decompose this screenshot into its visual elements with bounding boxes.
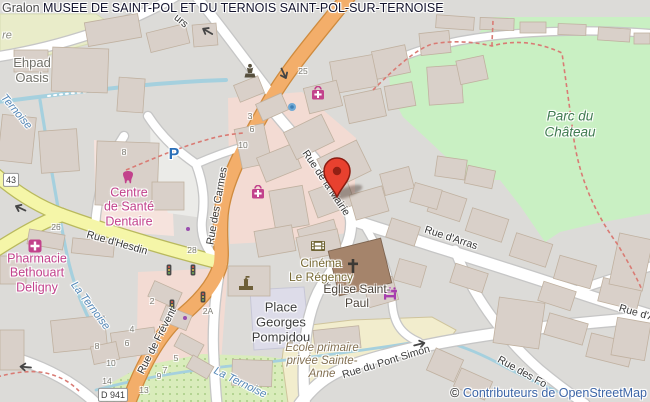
building (95, 141, 159, 207)
building (634, 33, 650, 44)
building (493, 297, 545, 349)
building (598, 27, 631, 42)
pin-body (324, 158, 350, 197)
building (0, 256, 26, 284)
map-base-layer (0, 0, 650, 402)
building (520, 22, 546, 33)
building (146, 23, 190, 52)
building (465, 208, 509, 243)
building (435, 156, 467, 180)
building (0, 330, 24, 370)
building (410, 183, 442, 210)
building (269, 185, 309, 230)
building (456, 55, 488, 84)
building (380, 166, 415, 195)
building (14, 50, 48, 72)
page-title: Gralon MUSEE DE SAINT-POL ET DU TERNOIS … (2, 1, 444, 15)
location-marker-pin[interactable] (322, 157, 352, 198)
building (71, 238, 114, 257)
copyright-symbol: © (450, 386, 459, 400)
building (386, 218, 421, 246)
building (51, 47, 109, 93)
building (117, 77, 145, 113)
building (152, 182, 184, 210)
attribution-link[interactable]: Contributeurs de OpenStreetMap (463, 386, 647, 400)
building (384, 82, 416, 110)
building (27, 229, 65, 250)
building (0, 114, 36, 163)
building (394, 259, 427, 288)
building (344, 88, 387, 123)
map-attribution[interactable]: © Contributeurs de OpenStreetMap (450, 386, 647, 400)
building (611, 317, 650, 360)
map-viewport[interactable]: Rue des CarmesRue de FréventRue d'Hesdin… (0, 0, 650, 402)
building (228, 266, 270, 296)
pin-center-dot (333, 167, 341, 175)
building (558, 24, 586, 36)
building (39, 129, 80, 174)
building (480, 17, 514, 30)
river-ternoise-north (0, 80, 226, 102)
building (313, 326, 361, 353)
title-prefix: Gralon (2, 1, 40, 15)
building (232, 359, 273, 386)
title-text: MUSEE DE SAINT-POL ET DU TERNOIS SAINT-P… (43, 1, 444, 15)
building (303, 80, 342, 113)
building (436, 15, 475, 31)
building (192, 23, 218, 47)
